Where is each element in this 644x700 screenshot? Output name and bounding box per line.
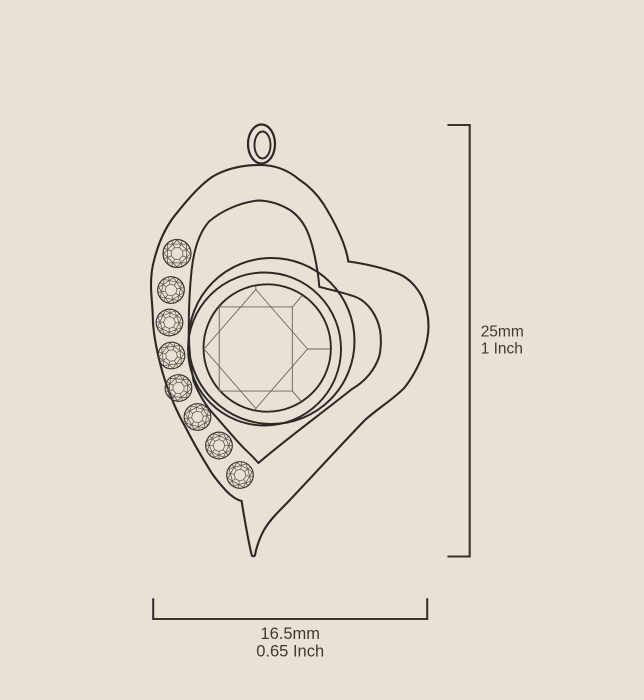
svg-text:16.5mm: 16.5mm bbox=[260, 625, 320, 643]
svg-text:0.65 Inch: 0.65 Inch bbox=[256, 642, 324, 660]
svg-text:25mm: 25mm bbox=[481, 323, 524, 340]
svg-text:1 Inch: 1 Inch bbox=[481, 341, 523, 358]
